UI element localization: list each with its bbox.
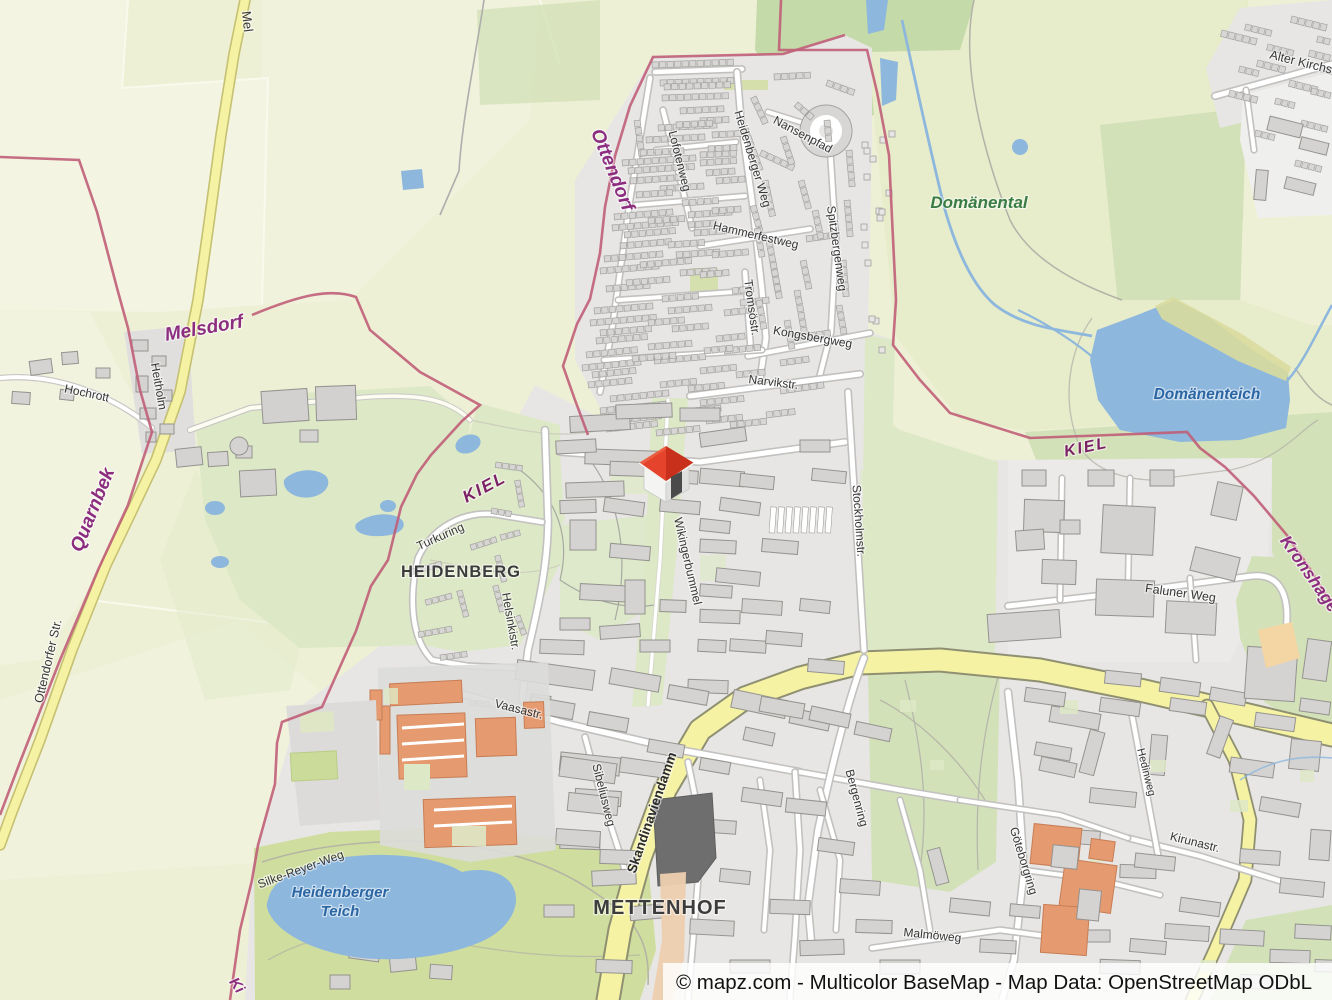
svg-text:METTENHOF: METTENHOF	[593, 897, 726, 919]
svg-text:Mel: Mel	[239, 10, 256, 33]
svg-text:HEIDENBERG: HEIDENBERG	[401, 563, 521, 581]
svg-text:Domänenteich: Domänenteich	[1154, 386, 1261, 403]
svg-text:Heidenberger: Heidenberger	[292, 884, 390, 901]
svg-text:Domänental: Domänental	[930, 193, 1029, 212]
svg-text:Teich: Teich	[321, 903, 360, 920]
svg-text:© mapz.com - Multicolor BaseMa: © mapz.com - Multicolor BaseMap - Map Da…	[676, 971, 1312, 994]
